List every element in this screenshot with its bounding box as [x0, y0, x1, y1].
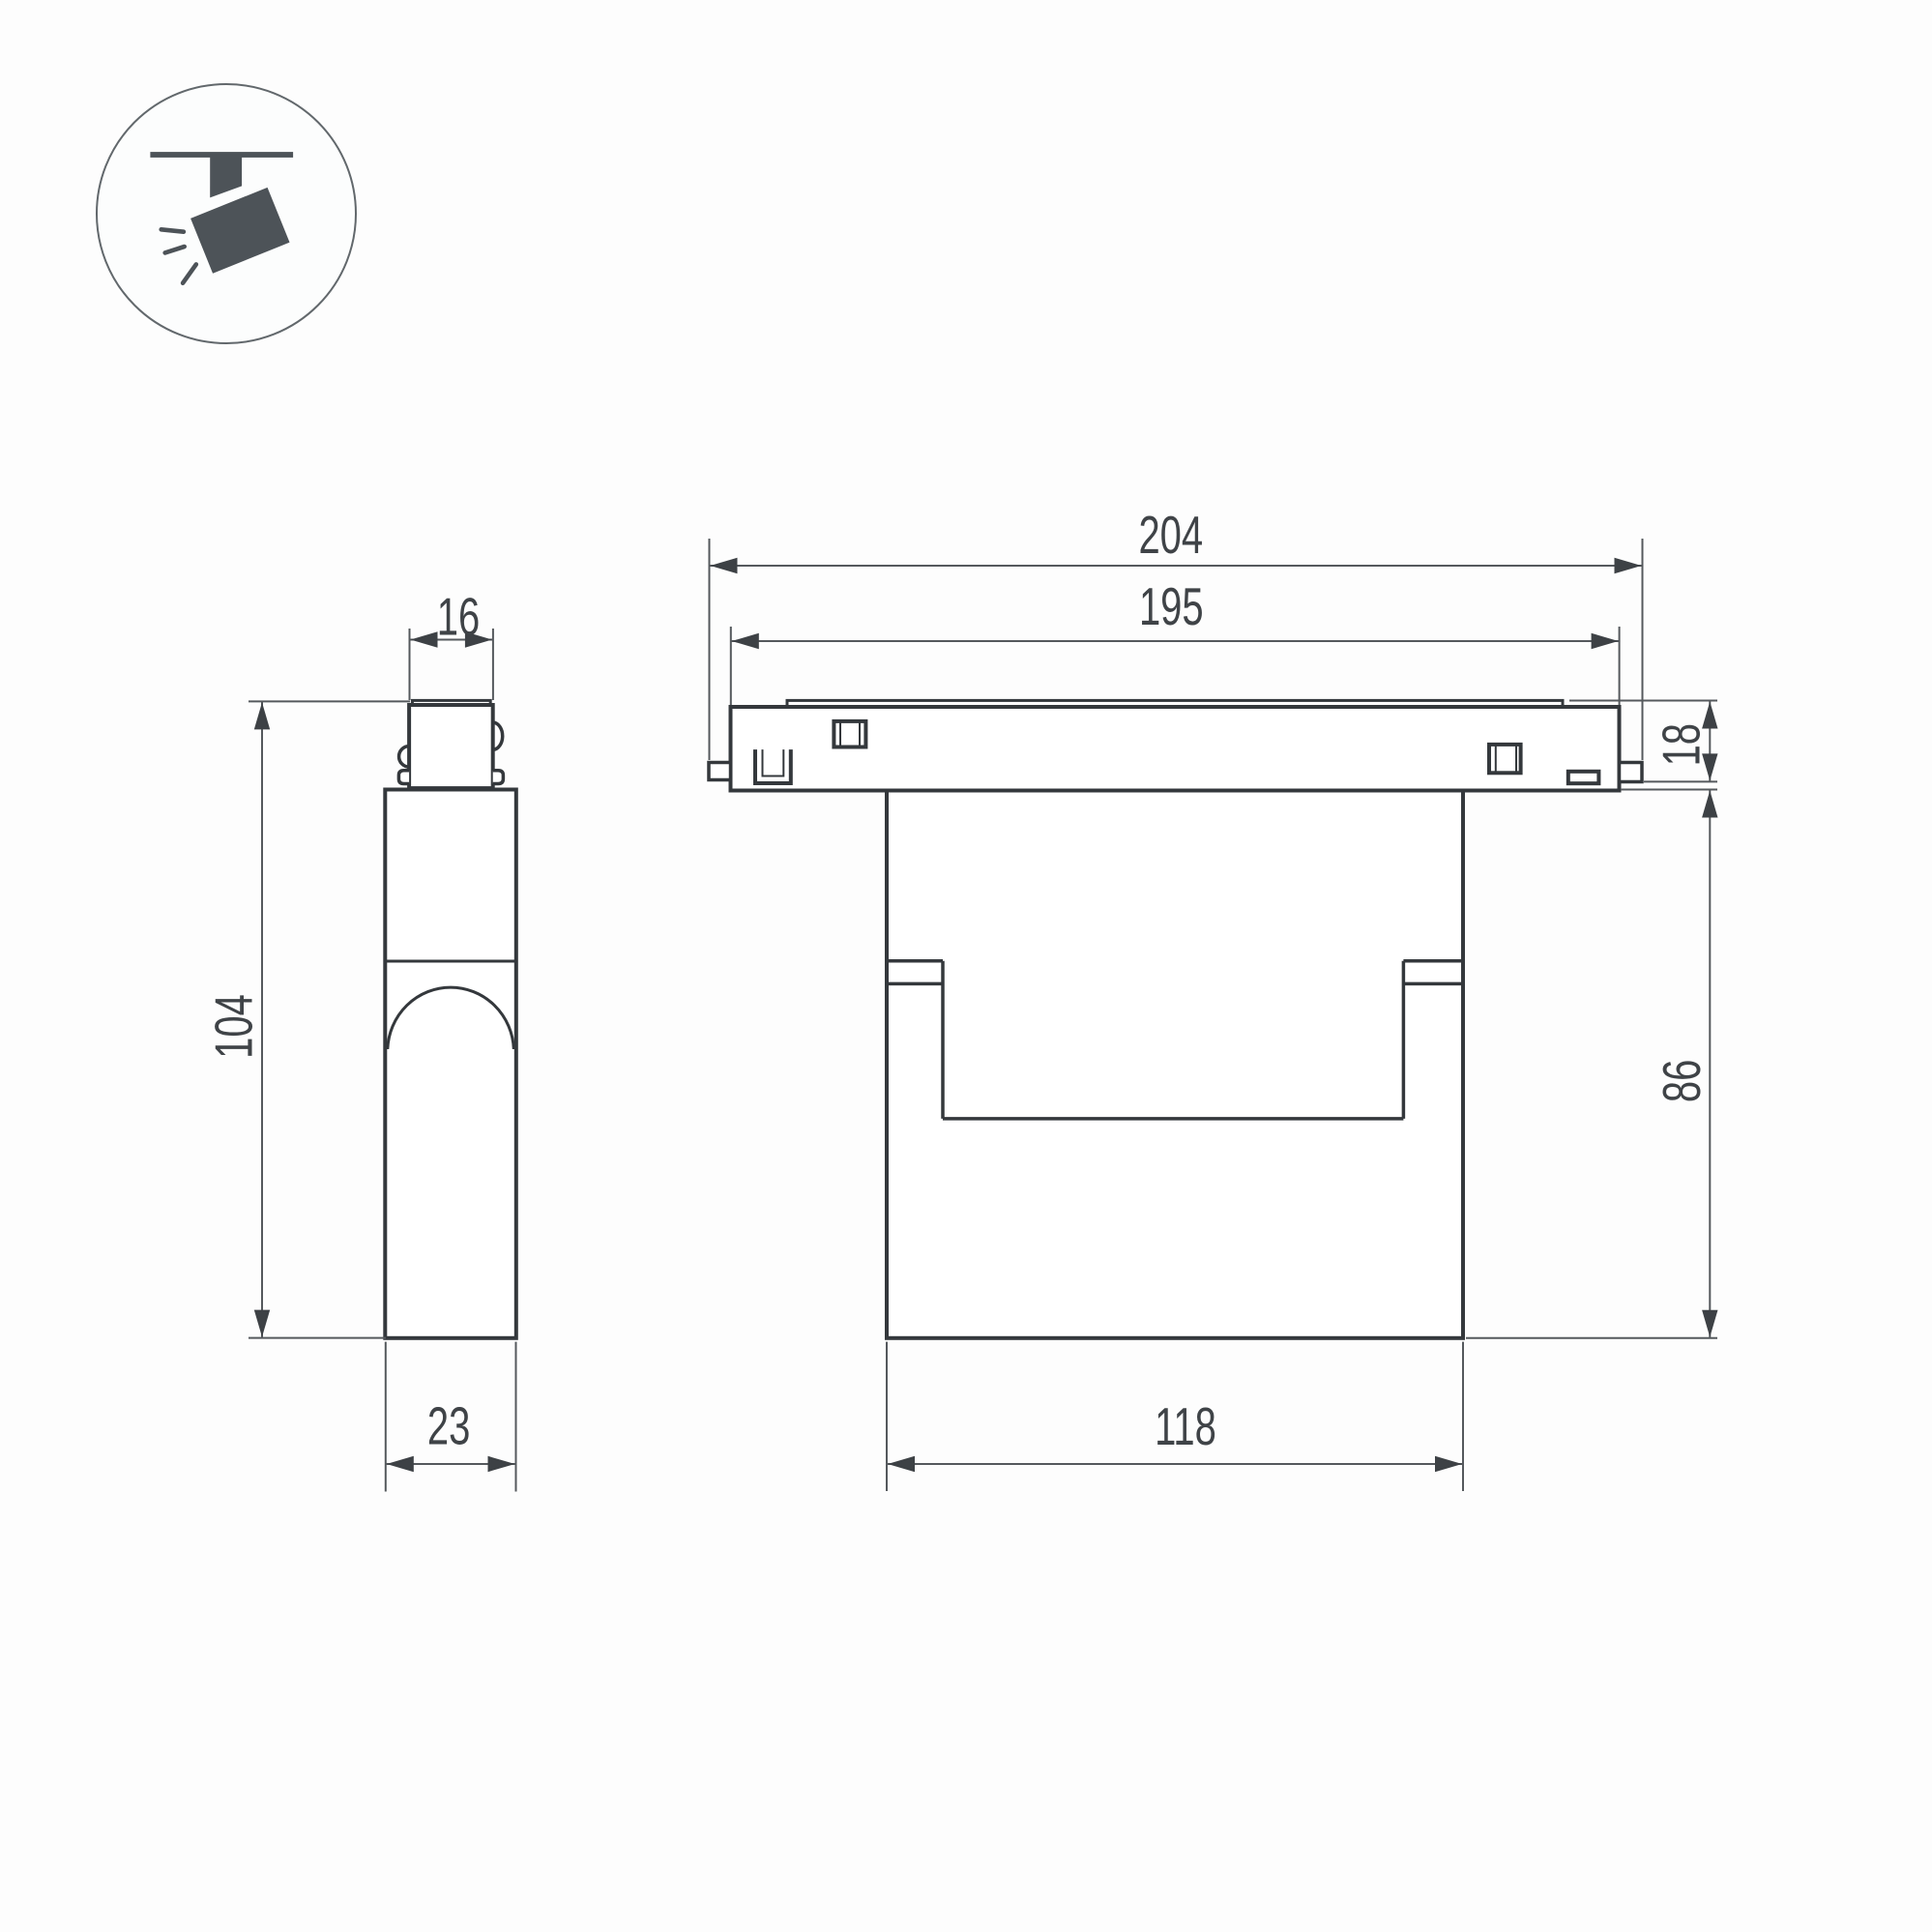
svg-text:23: 23	[427, 1396, 470, 1456]
svg-text:18: 18	[1652, 723, 1712, 766]
svg-text:16: 16	[437, 587, 480, 647]
svg-text:104: 104	[204, 994, 264, 1059]
svg-text:118: 118	[1155, 1397, 1216, 1457]
svg-text:195: 195	[1139, 577, 1204, 637]
svg-text:86: 86	[1653, 1060, 1712, 1102]
svg-text:204: 204	[1138, 506, 1203, 566]
